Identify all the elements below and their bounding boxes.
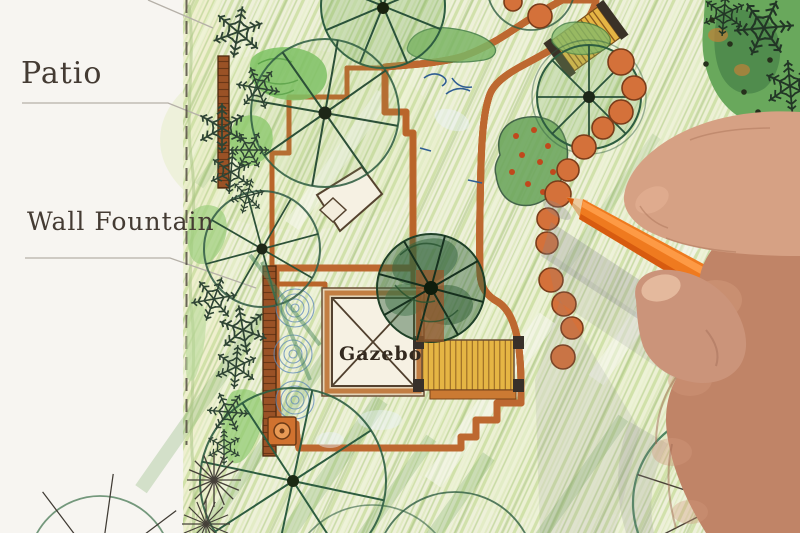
label-patio: Patio [21,56,102,91]
stepping-stone [622,76,646,100]
stepping-stone [572,135,596,159]
boardwalk [413,336,524,399]
stepping-stone [504,0,522,11]
label-wall-fountain: Wall Fountain [27,207,215,236]
ornamental-grass [187,453,241,507]
plan-drawing [0,0,800,533]
stepping-stone [557,159,579,181]
stepping-stone [609,100,633,124]
stepping-stone [528,4,552,28]
photo-landscape-plan: Patio Wall Fountain Gazebo [0,0,800,533]
stepping-stone [592,117,614,139]
planter-pot [268,417,296,445]
stepping-stone [608,49,634,75]
label-gazebo: Gazebo [339,343,422,365]
